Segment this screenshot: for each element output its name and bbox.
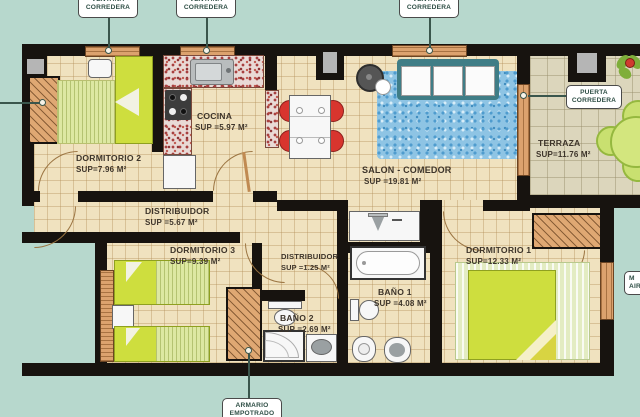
callout-line: CORREDERA <box>79 4 137 12</box>
wall <box>517 55 530 85</box>
wall <box>78 191 162 202</box>
pillar <box>321 50 339 75</box>
flower <box>625 58 635 68</box>
room-area-dormitorio1: SUP=12.33 M² <box>466 257 521 266</box>
leader-line <box>248 354 250 400</box>
callout-line: CORREDERA <box>400 4 458 12</box>
leader-node <box>105 47 112 54</box>
room-label-bano2: BAÑO 2 <box>280 313 314 323</box>
sink-basin <box>195 63 222 81</box>
room-area-salon: SUP =19.81 M² <box>364 177 421 186</box>
sofa-cushion <box>433 66 463 96</box>
room-label-cocina: COCINA <box>197 111 232 121</box>
room-area-cocina: SUP =5.97 M² <box>195 123 248 132</box>
callout-line: M <box>629 275 640 283</box>
wall <box>152 55 163 152</box>
pillow <box>88 59 112 78</box>
room-label-distribuidor2: DISTRIBUIDOR <box>281 252 338 261</box>
room-area-bano1: SUP =4.08 M² <box>374 299 427 308</box>
sofa-cushion <box>465 66 495 96</box>
room-area-distribuidor: SUP =5.67 M² <box>145 218 198 227</box>
exterior-bottom <box>0 376 640 417</box>
bidet-basin <box>358 343 370 355</box>
leader-node <box>245 347 252 354</box>
leader-node <box>39 99 46 106</box>
bed-dormitorio2-foot <box>57 80 115 144</box>
room-label-terraza: TERRAZA <box>538 138 580 148</box>
place-setting <box>318 137 325 144</box>
sofa-cushion <box>401 66 431 96</box>
burner <box>180 108 187 115</box>
sink-basin-dark <box>311 339 332 355</box>
wall <box>22 191 40 202</box>
pillar <box>575 51 599 75</box>
window-dormitorio1 <box>600 262 614 320</box>
kitchen-cabinet <box>265 90 279 148</box>
callout-armario-empotrado: ARMARIO EMPOTRADO <box>222 398 282 417</box>
place-setting <box>296 137 303 144</box>
side-table-center <box>366 74 372 80</box>
wall <box>265 55 277 90</box>
vanity-faucet <box>392 219 402 221</box>
room-label-salon: SALON - COMEDOR <box>362 165 452 175</box>
pillar <box>24 56 47 77</box>
room-label-bano1: BAÑO 1 <box>378 287 412 297</box>
vanity-basin-rim <box>368 213 388 217</box>
closet-dormitorio1 <box>532 213 602 249</box>
burner <box>180 94 187 101</box>
leader-node <box>203 47 210 54</box>
leader-line <box>528 95 568 97</box>
wall <box>277 200 345 211</box>
bed-fold <box>126 262 142 282</box>
place-setting <box>296 107 303 114</box>
closet-dormitorio2 <box>28 76 60 144</box>
burner <box>169 108 176 115</box>
leader-line <box>206 16 208 48</box>
callout-ventana-corredera-3: VENTANA CORREDERA <box>399 0 459 18</box>
callout-line: CORREDERA <box>567 97 621 105</box>
vanity-basin <box>371 215 385 231</box>
bed-fold <box>530 334 556 360</box>
wall <box>337 253 348 363</box>
sink-faucet <box>226 68 231 73</box>
callout-line: EMPOTRADO <box>223 410 281 417</box>
room-area-bano2: SUP =2.69 M² <box>278 325 331 334</box>
bed-fold <box>115 88 139 116</box>
room-area-dormitorio3: SUP=9.39 M² <box>170 257 220 266</box>
callout-ventana-corredera-1: VENTANA CORREDERA <box>78 0 138 18</box>
callout-line: AIR <box>629 283 640 291</box>
callout-puerta-corredera: PUERTA CORREDERA <box>566 85 622 109</box>
closet-armario-empotrado <box>226 287 262 361</box>
wall <box>162 191 213 202</box>
leader-line <box>108 16 110 48</box>
callout-line: CORREDERA <box>177 4 235 12</box>
room-label-distribuidor: DISTRIBUIDOR <box>145 206 209 216</box>
callout-line: PUERTA <box>567 89 621 97</box>
room-area-dormitorio2: SUP=7.96 M² <box>76 165 126 174</box>
wall <box>262 290 305 301</box>
callout-line: ARMARIO <box>223 402 281 410</box>
dining-table <box>289 95 331 159</box>
leader-line <box>0 102 42 104</box>
room-area-distribuidor2: SUP =1.25 M² <box>281 263 330 272</box>
room-area-terraza: SUP=11.76 M² <box>536 150 591 159</box>
table-line <box>290 116 330 117</box>
wall <box>253 191 277 202</box>
bathtub-drain <box>362 261 366 265</box>
bed-b-stripe <box>156 327 209 361</box>
toilet-tank <box>268 301 302 309</box>
wall <box>525 195 640 208</box>
leader-line <box>429 16 431 48</box>
bed-a-stripe <box>156 261 209 304</box>
burner <box>169 94 176 101</box>
toilet-tank <box>350 299 359 321</box>
leader-node <box>426 47 433 54</box>
fridge <box>163 155 196 189</box>
leader-node <box>520 92 527 99</box>
sink-basin-dark <box>389 343 405 357</box>
place-setting <box>318 107 325 114</box>
room-label-dormitorio2: DORMITORIO 2 <box>76 153 141 163</box>
stool <box>375 79 391 95</box>
wall <box>430 200 442 363</box>
callout-ac-truncated: M AIR <box>624 271 640 295</box>
wall <box>22 363 614 376</box>
room-label-dormitorio3: DORMITORIO 3 <box>170 245 235 255</box>
room-label-dormitorio1: DORMITORIO 1 <box>466 245 531 255</box>
bed-fold <box>126 328 140 346</box>
floor-plan: VENTANA CORREDERA VENTANA CORREDERA VENT… <box>0 0 640 417</box>
callout-ventana-corredera-2: VENTANA CORREDERA <box>176 0 236 18</box>
